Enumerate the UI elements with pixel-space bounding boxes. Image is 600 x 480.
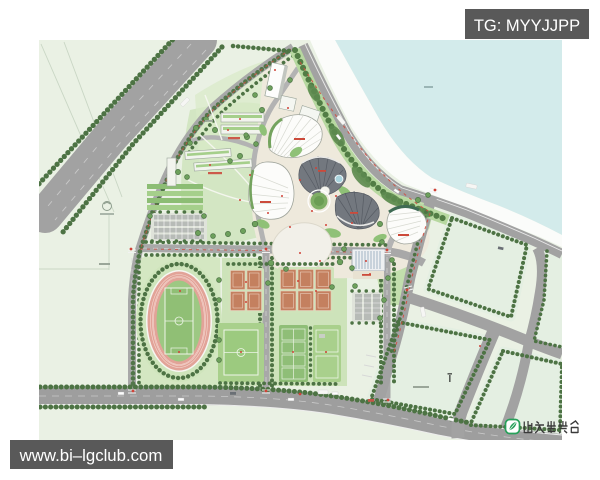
svg-text:TG: MYYJJPP: TG: MYYJJPP (474, 17, 580, 35)
svg-text:www.bi–lgclub.com: www.bi–lgclub.com (19, 446, 163, 465)
